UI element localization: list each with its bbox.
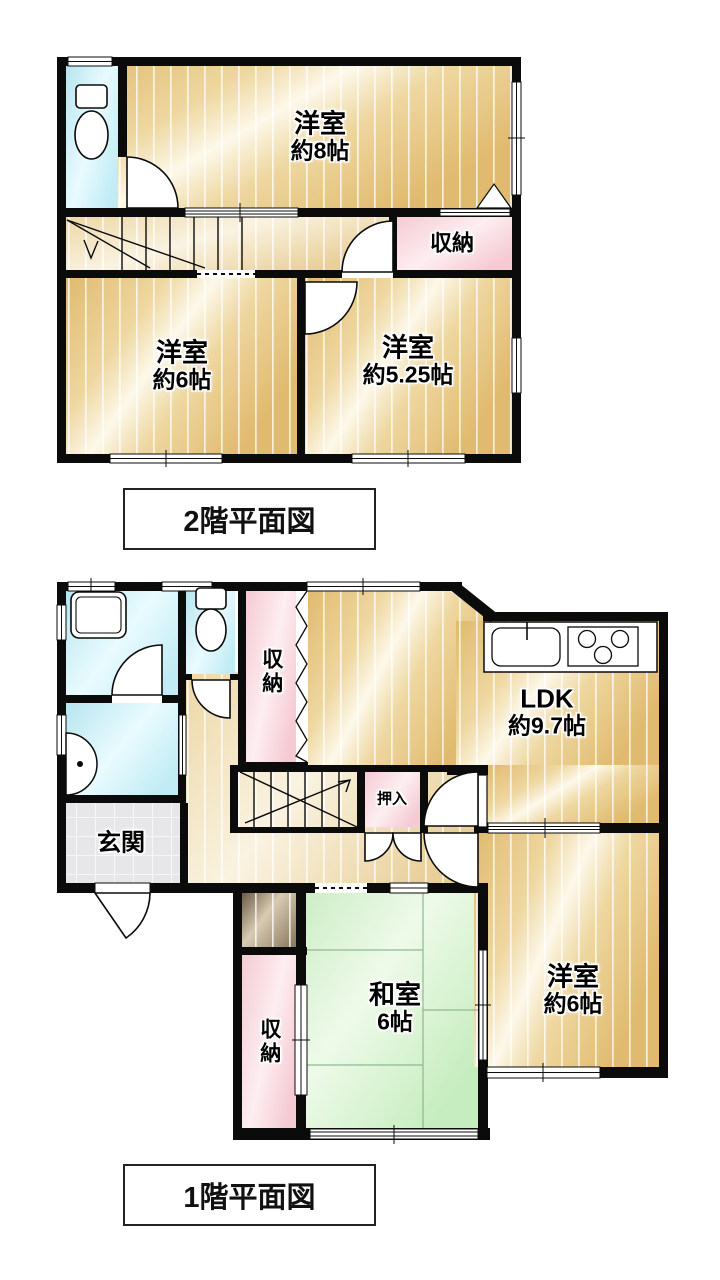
western6-1f xyxy=(474,833,659,1067)
room-label-closet-2f: 収納 xyxy=(430,232,474,257)
room-label-genkan: 玄関 xyxy=(97,831,145,858)
floor2-room-fills xyxy=(66,66,512,454)
room-label-western525-2f: 洋室 約5.25帖 xyxy=(363,334,454,389)
floor-plan-page: 洋室 約8帖 収納 洋室 約6帖 洋室 約5.25帖 2階平面図 収納 LDK … xyxy=(0,0,720,1280)
room-label-ldk: LDK 約9.7帖 xyxy=(508,685,586,740)
toilet-icon-2f xyxy=(75,85,108,159)
open-wall-dashed-2f xyxy=(197,270,255,278)
caption-floor1: 1階平面図 xyxy=(123,1164,376,1226)
accordion-door-1f xyxy=(296,591,308,762)
entrance-door-arc xyxy=(95,893,150,938)
door-leaf-ldk xyxy=(478,775,487,827)
room-label-closet-bottom-1f: 収納 xyxy=(257,1018,281,1066)
kitchen-counter xyxy=(484,622,657,672)
room-label-washitsu: 和室 6帖 xyxy=(369,981,421,1036)
toilet-icon-1f xyxy=(196,588,226,651)
room-label-western8-2f: 洋室 約8帖 xyxy=(291,110,350,165)
open-wall-dashed-1f xyxy=(315,883,367,893)
room-label-closet-top-1f: 収納 xyxy=(259,648,283,696)
room-label-oshiire: 押入 xyxy=(377,792,407,809)
bathtub-icon xyxy=(71,592,126,638)
floor-plan-drawing xyxy=(0,0,720,1280)
caption-floor2: 2階平面図 xyxy=(123,488,376,550)
kitchen-sink-icon xyxy=(492,628,560,666)
room-label-western6-2f: 洋室 約6帖 xyxy=(153,339,212,394)
room-label-western6-1f: 洋室 約6帖 xyxy=(544,963,603,1018)
